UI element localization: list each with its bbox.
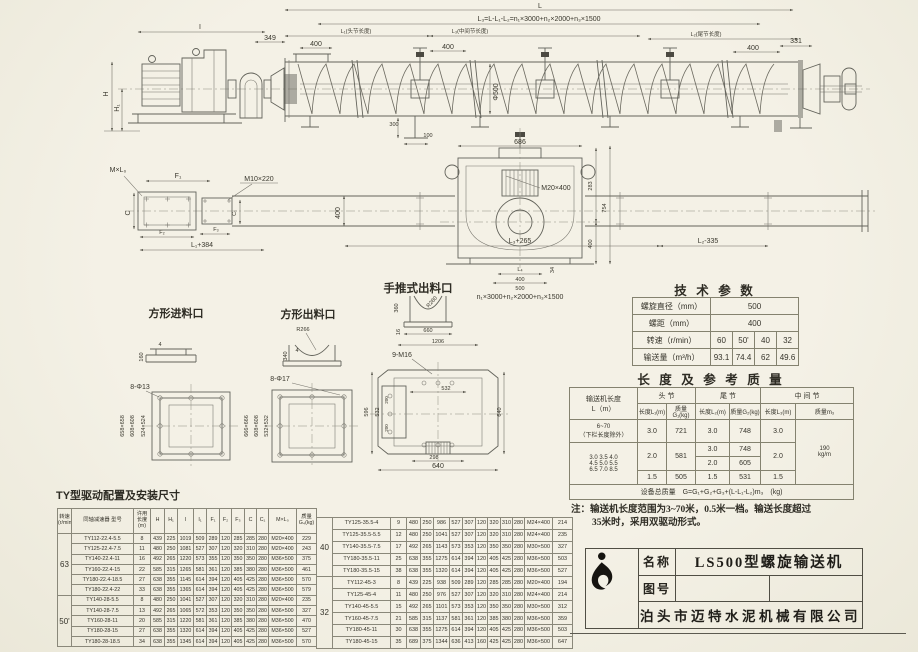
dim-label: 16 [396,329,402,335]
cell: M36×500 [525,553,553,565]
cell: 25 [391,553,407,565]
cell: 355 [421,625,434,637]
cell: 1.5 [638,471,667,485]
dim-label: 754 [602,203,608,212]
dim-label: 283 [588,181,594,190]
cell: 748 [730,420,761,443]
cell: M36×500 [269,585,297,595]
cell: 11 [391,589,407,601]
cell: 585 [151,616,165,626]
cell: 503 [553,625,573,637]
table-row: TY160-45-7.52158531511375813611203853802… [317,613,573,625]
cell: 503 [553,553,573,565]
cell: 570 [297,636,317,646]
cell: 505 [667,471,696,485]
dim-label: 532 [441,386,450,392]
cell: 11 [134,544,151,554]
cell: 8 [134,595,151,605]
column-header: C [245,509,257,534]
cell: 492 [151,554,165,564]
cell: 480 [407,529,421,541]
cell: 120 [220,575,232,585]
cell: TY180-35.5-15 [333,565,391,577]
cell: M36×500 [269,626,297,636]
dim-label: 660 [423,328,432,334]
cell: 425 [245,575,257,585]
cell: 638 [151,626,165,636]
cell: 280 [257,585,269,595]
cell: 425 [501,553,513,565]
cell: TY180-28-18.5 [72,636,134,646]
cell: TY112-22.4-5.5 [72,534,134,544]
cell: 938 [434,577,450,589]
tech-params-table: 螺旋直径（mm）500 螺距（mm）400 转速（r/min） 6050'403… [632,297,799,366]
plan-view-drawing: M×L₀ F₁ M10×220 C C₁ F₂ F₃ L₁+384 400 L₃… [110,167,875,250]
cell: 1365 [178,585,194,595]
cell: 320 [232,595,245,605]
cell: 120 [476,613,488,625]
dim-label: H [103,91,110,96]
cell: 1081 [178,544,194,554]
cell: 375 [421,636,434,648]
cell: 250 [165,595,178,605]
cell: 320 [232,544,245,554]
logo-cell [586,549,639,628]
cell: 480 [151,595,165,605]
cell: TY180-45-15 [333,636,391,648]
cell: M24×400 [525,589,553,601]
table-row: 32TY112-45-38439225938509289120285285280… [317,577,573,589]
square-inlet-drawing: 方形进料口 4 160 8-Φ13 658×658 608×608 524×52… [120,306,240,468]
cell: M36×500 [269,554,297,564]
table-row: 6~70（下栏长度除外） 3.0 721 3.0 748 3.0 190kg/m [570,420,854,443]
column-header: 质量G₂(kg) [730,404,761,420]
drive-config-caption: TY型驱动配置及安装尺寸 [56,488,180,502]
dim-label: 4 [295,348,298,354]
dim-label: L [538,3,542,10]
title-row-name: 名称 LS500型螺旋输送机 [639,549,862,576]
cell: 1101 [434,601,450,613]
cell: TY180-35.5-11 [333,553,391,565]
cell: 461 [297,564,317,574]
cell: TY160-22.4-15 [72,564,134,574]
table-row: 输送量（m³/h） 93.174.46249.6 [633,349,799,366]
dim-label: 658×658 [120,415,126,437]
cell: TY160-28-11 [72,616,134,626]
cell: 385 [232,564,245,574]
title-block: 名称 LS500型螺旋输送机 图号 泊头市迈特水泥机械有限公司 [585,548,863,629]
cell: 285 [501,577,513,589]
cell: 425 [245,585,257,595]
cell: 353 [463,601,476,613]
speed-cell: 32 [317,577,333,648]
param-value: 62 [755,349,777,366]
cell: 721 [667,420,696,443]
dim-label: 608×608 [130,415,136,437]
dim-label: M×L₀ [110,167,127,174]
cell: 8 [391,577,407,589]
cell: 614 [194,575,207,585]
cell: 394 [207,585,220,595]
cell: 380 [245,616,257,626]
product-name: LS500型螺旋输送机 [676,549,862,575]
cell: 361 [207,616,220,626]
dim-label: 400 [588,239,594,248]
cell: 1145 [178,575,194,585]
cell: 355 [165,626,178,636]
dim-label: 1206 [432,339,444,345]
table-row: TY160-22.4-15225853151265581361120385380… [58,564,317,574]
cell: 480 [407,589,421,601]
cell: 235 [297,595,317,605]
column-header: 转速 (r/min) [58,509,72,534]
cell: M20×400 [525,577,553,589]
dim-label: 686 [514,139,526,146]
cell: 33 [134,585,151,595]
cell: 15 [391,601,407,613]
drawing-no-label: 图号 [639,576,676,602]
cell: 320 [488,529,501,541]
cell: 12 [391,529,407,541]
cell: TY180-22.4-18.5 [72,575,134,585]
cell: 405 [232,626,245,636]
cell: 394 [207,636,220,646]
cell: 689 [407,636,421,648]
cell: 35 [391,636,407,648]
dim-label: H₁ [114,104,121,112]
param-label: 螺旋直径（mm） [633,298,711,315]
cell: 280 [257,595,269,605]
square-inlet-caption: 方形进料口 [149,306,204,320]
cell: 2.0 [638,443,667,471]
cell: 13 [134,606,151,616]
cell: TY125-45-4 [333,589,391,601]
cell: 3.0 [638,420,667,443]
cell: 355 [165,585,178,595]
cell: 585 [407,613,421,625]
cell: 350 [232,606,245,616]
cell: 394 [463,625,476,637]
cell: M36×500 [269,564,297,574]
param-value: 60 [711,332,733,349]
table-row: 设备总质量 G=G₁+G₂+G₃+(L-L₁-L₂)m₃ (kg) [570,485,854,500]
dim-label: C₁ [232,210,238,216]
cell: 250 [165,544,178,554]
dim-label: Φ500 [493,83,500,100]
param-label: 输送量（m³/h） [633,349,711,366]
dim-label: n₁×3000+n₂×2000+n₃×1500 [477,294,564,301]
cell: 1345 [178,636,194,646]
cell: 214 [553,589,573,601]
cell: 581 [194,616,207,626]
cell: 225 [421,577,434,589]
cell: 235 [553,529,573,541]
table-row: TY180-28-1527638355132061439412040542528… [58,626,317,636]
dim-label: 200 [384,424,389,432]
cell: 120 [220,626,232,636]
title-row-company: 泊头市迈特水泥机械有限公司 [639,602,862,628]
dim-label: L₄ [517,267,523,273]
param-label: 转速（r/min） [633,332,711,349]
cell: 581 [194,564,207,574]
drawing-no-value [676,576,770,602]
dim-label: 400 [747,45,759,52]
speed-cell: 40 [317,518,333,577]
param-value: 50' [733,332,755,349]
cell: 405 [232,575,245,585]
cell: 280 [257,626,269,636]
cell: M30×500 [525,541,553,553]
bolt-marks [144,197,191,228]
cell: 250 [421,589,434,601]
cell: 312 [553,601,573,613]
table-row: 63TY112-22.4-5.5843922510195092891202852… [58,534,317,544]
cell: 647 [553,636,573,648]
cell: 394 [207,575,220,585]
dim-label: F₁ [175,173,182,180]
cell: 1041 [178,595,194,605]
cell: 285 [488,577,501,589]
dim-label: 608×608 [254,415,260,437]
cell: 315 [165,616,178,626]
dim-label: 9-M16 [392,352,412,359]
cell: 120 [476,589,488,601]
table-row: TY125-35.5-5.512480250104152730712032031… [317,529,573,541]
cell: 120 [220,595,232,605]
cell: 120 [476,518,488,530]
dim-label: 298 [429,455,438,461]
dim-label: L₂(尾节长度) [691,30,722,38]
cell: 120 [476,577,488,589]
cell: 17 [391,541,407,553]
cell: M36×500 [269,616,297,626]
cell: TY140-45-5.5 [333,601,391,613]
cell: TY140-35.5-7.5 [333,541,391,553]
param-value: 40 [755,332,777,349]
cell: 355 [207,554,220,564]
cell: 638 [407,553,421,565]
dim-label: 34 [550,267,556,273]
cell: 413 [463,636,476,648]
param-value: 49.6 [777,349,799,366]
cell: 509 [450,577,463,589]
speed-cell: 50' [58,595,72,646]
dim-label: F₂ [159,230,165,236]
dim-label: 666×666 [244,415,250,437]
table-row: TY180-22.4-22336383551365614394120405425… [58,585,317,595]
side-view-drawing: L L₃=L-L₁-L₂=n₁×3000+n₂×2000+n₃×1500 I 3… [103,3,870,144]
cell: 509 [194,534,207,544]
cell: TY140-28-5.5 [72,595,134,605]
cell: 527 [297,626,317,636]
param-label: 螺距（mm） [633,315,711,332]
column-header: 中 间 节 [761,388,854,404]
column-header: I₁ [194,509,207,534]
cell: 120 [476,601,488,613]
cell: 265 [165,606,178,616]
cell: 280 [257,606,269,616]
cell: 405 [232,636,245,646]
plan-view-dim-labels: M×L₀ F₁ M10×220 C C₁ F₂ F₃ L₁+384 400 L₃… [110,167,719,249]
param-value: 32 [777,332,799,349]
column-header: 长度L₂(m) [696,404,730,420]
cell: 120 [220,564,232,574]
dim-label: L₂-335 [698,238,719,245]
dim-label: R266 [296,327,309,333]
cell: 310 [245,595,257,605]
cell: 310 [501,589,513,601]
cell: 280 [513,541,525,553]
cell: 614 [194,585,207,595]
cell: 527 [450,529,463,541]
cell: 581 [450,613,463,625]
cell: 350 [488,601,501,613]
cell: 572 [194,606,207,616]
cell: 492 [407,541,421,553]
drawing-sheet: L L₃=L-L₁-L₂=n₁×3000+n₂×2000+n₃×1500 I 3… [0,0,918,652]
column-header: 质量 G₄(kg) [297,509,317,534]
column-header: C₁ [257,509,269,534]
dim-label: 400 [442,44,454,51]
dim-label: 400 [515,277,524,283]
cell: 480 [151,544,165,554]
column-header: 长度L₁(m) [638,404,667,420]
cell: 22 [134,564,151,574]
column-header: 尾 节 [696,388,761,404]
cell: 350 [501,601,513,613]
table-row: TY180-35.5-11256383551275614394120405425… [317,553,573,565]
cell: 638 [407,625,421,637]
cell: 3.0 [761,420,796,443]
cell: 361 [463,613,476,625]
length-mass-title: 长 度 及 参 考 质 量 [569,369,853,388]
cell: 355 [421,553,434,565]
cell: 350 [232,554,245,564]
cell: 280 [257,636,269,646]
cell: 280 [257,564,269,574]
dim-label: 100 [423,133,432,139]
cell: 307 [207,544,220,554]
cell: 289 [463,577,476,589]
cell: 310 [501,529,513,541]
cell: 307 [463,518,476,530]
column-header: H [151,509,165,534]
table-row: TY160-28-1120585315122058136112038538028… [58,616,317,626]
cell: 3.0 [696,443,730,457]
column-header: 许用 长度 (m) [134,509,151,534]
cell: M36×500 [525,565,553,577]
cell: 307 [207,595,220,605]
dim-label: 200 [384,396,389,404]
cell: 307 [463,589,476,601]
cell: 120 [220,554,232,564]
cell: TY125-35.5-5.5 [333,529,391,541]
cell: 250 [421,529,434,541]
cell: M36×500 [269,606,297,616]
cell: M24×400 [525,518,553,530]
cell: 405 [488,553,501,565]
table-row: 转速（r/min） 6050'4032 [633,332,799,349]
table-row: TY180-28-18.5346383551345614394120405425… [58,636,317,646]
cell: 1320 [434,565,450,577]
cell: TY125-35.5-4 [333,518,391,530]
cell: 350 [488,541,501,553]
cell: 285 [245,534,257,544]
cell: 16 [134,554,151,564]
drawing-no-extra [770,576,863,602]
cell: M36×500 [525,613,553,625]
cell: 120 [476,565,488,577]
table-row: TY125-22.4-7.511480250108152730712032031… [58,544,317,554]
cell: 120 [476,625,488,637]
cell: 265 [165,554,178,564]
drive-mount-table-left: 转速 (r/min) 同轴减速器 型号 许用 长度 (m) H H₁ I I₁ … [57,508,317,647]
cell: 375 [297,554,317,564]
cell: 280 [513,518,525,530]
cell: 34 [134,636,151,646]
cell: 30 [391,625,407,637]
cell: 405 [488,625,501,637]
cell: 439 [407,577,421,589]
cell: 1.5 [761,471,796,485]
table-row: TY180-35.5-15386383551320614394120405425… [317,565,573,577]
cell: 527 [450,518,463,530]
cell: 350 [245,554,257,564]
dim-label: 8-Φ13 [130,384,150,391]
cell: 8 [134,534,151,544]
cell: 194 [553,577,573,589]
cell: 986 [434,518,450,530]
cell: 394 [207,626,220,636]
cell: 527 [194,595,207,605]
param-value: 400 [711,315,799,332]
cell: 492 [407,601,421,613]
cell: 280 [257,575,269,585]
title-row-drawing-no: 图号 [639,576,862,603]
column-header: H₁ [165,509,178,534]
cell: 638 [151,636,165,646]
cell: 605 [730,457,761,471]
cell: 310 [501,518,513,530]
hanger-bearings [411,48,679,98]
push-outlet-caption: 手推式出料口 [384,281,453,295]
table-row: TY180-45-1535689375134463641316042542528… [317,636,573,648]
cell: 120 [220,636,232,646]
cell: 425 [245,626,257,636]
cell: 327 [297,606,317,616]
column-header: 长度L₃(m) [761,404,796,420]
cell: 307 [463,529,476,541]
note-line: 注：输送机长度范围为3~70米，0.5米一档。输送长度超过 [571,504,916,517]
cell: 160 [476,636,488,648]
cell: 320 [488,589,501,601]
cell: TY180-22.4-22 [72,585,134,595]
column-header: 质量G₁(kg) [667,404,696,420]
cell: 1275 [434,553,450,565]
cell: 315 [421,613,434,625]
cell: M20×400 [269,534,297,544]
length-mass-table: 输送机长度L（m） 头 节 尾 节 中 间 节 长度L₁(m) 质量G₁(kg)… [569,387,854,500]
tail-end [774,60,862,132]
cell: 636 [450,636,463,648]
cell: 405 [232,585,245,595]
dim-label: 300 [389,122,398,128]
cell: 527 [194,544,207,554]
length-range: 6~70（下栏长度除外） [570,420,638,443]
cell: 315 [165,564,178,574]
cell: 385 [488,613,501,625]
cell: 285 [232,534,245,544]
